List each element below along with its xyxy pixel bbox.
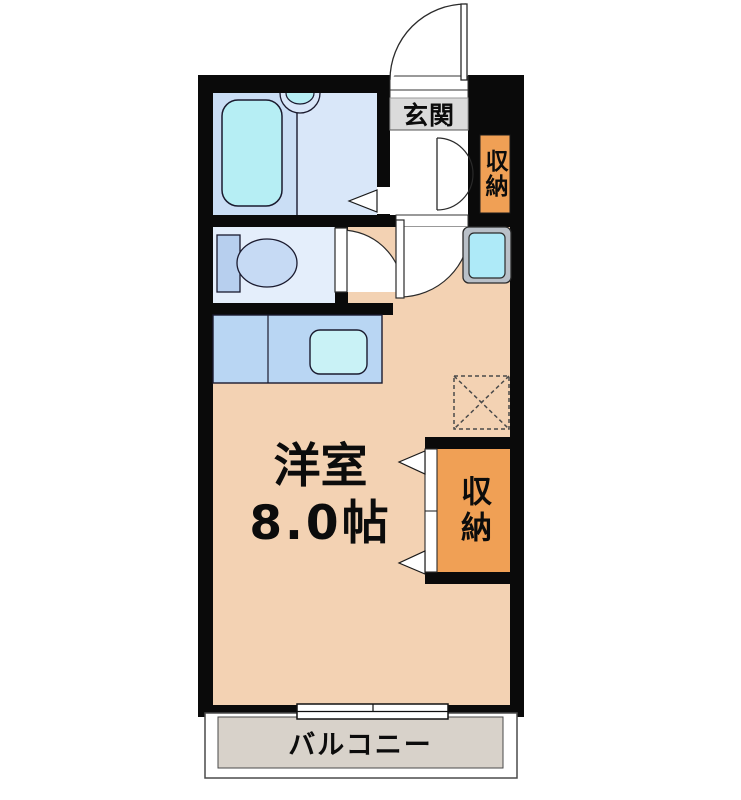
- balcony-deck: [218, 717, 503, 768]
- balcony: [205, 713, 517, 778]
- bathtub-icon: [222, 100, 282, 206]
- washing-machine-pan-icon: [463, 227, 511, 283]
- entrance-pad: [390, 98, 468, 130]
- floor-plan: 玄関 収納 収納 洋室 8.0帖 バルコニー: [0, 0, 741, 800]
- kitchen: [213, 315, 382, 383]
- entrance-door-icon: [390, 4, 467, 80]
- entrance-threshold: [390, 76, 468, 98]
- balcony-sliding-window: [297, 704, 448, 719]
- main-closet-box: [437, 449, 510, 572]
- kitchen-sink-icon: [310, 330, 367, 374]
- floor-plan-drawing: [0, 0, 741, 800]
- entry-closet: [480, 135, 510, 213]
